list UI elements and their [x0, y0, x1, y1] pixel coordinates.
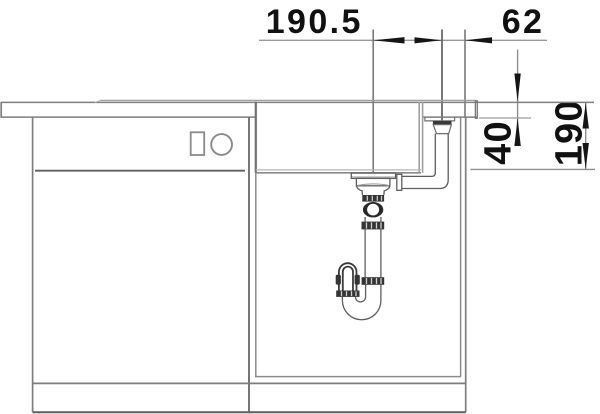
svg-text:190: 190	[549, 99, 591, 166]
svg-text:190.5: 190.5	[266, 3, 363, 41]
svg-text:40: 40	[478, 120, 520, 165]
svg-text:62: 62	[502, 3, 545, 41]
